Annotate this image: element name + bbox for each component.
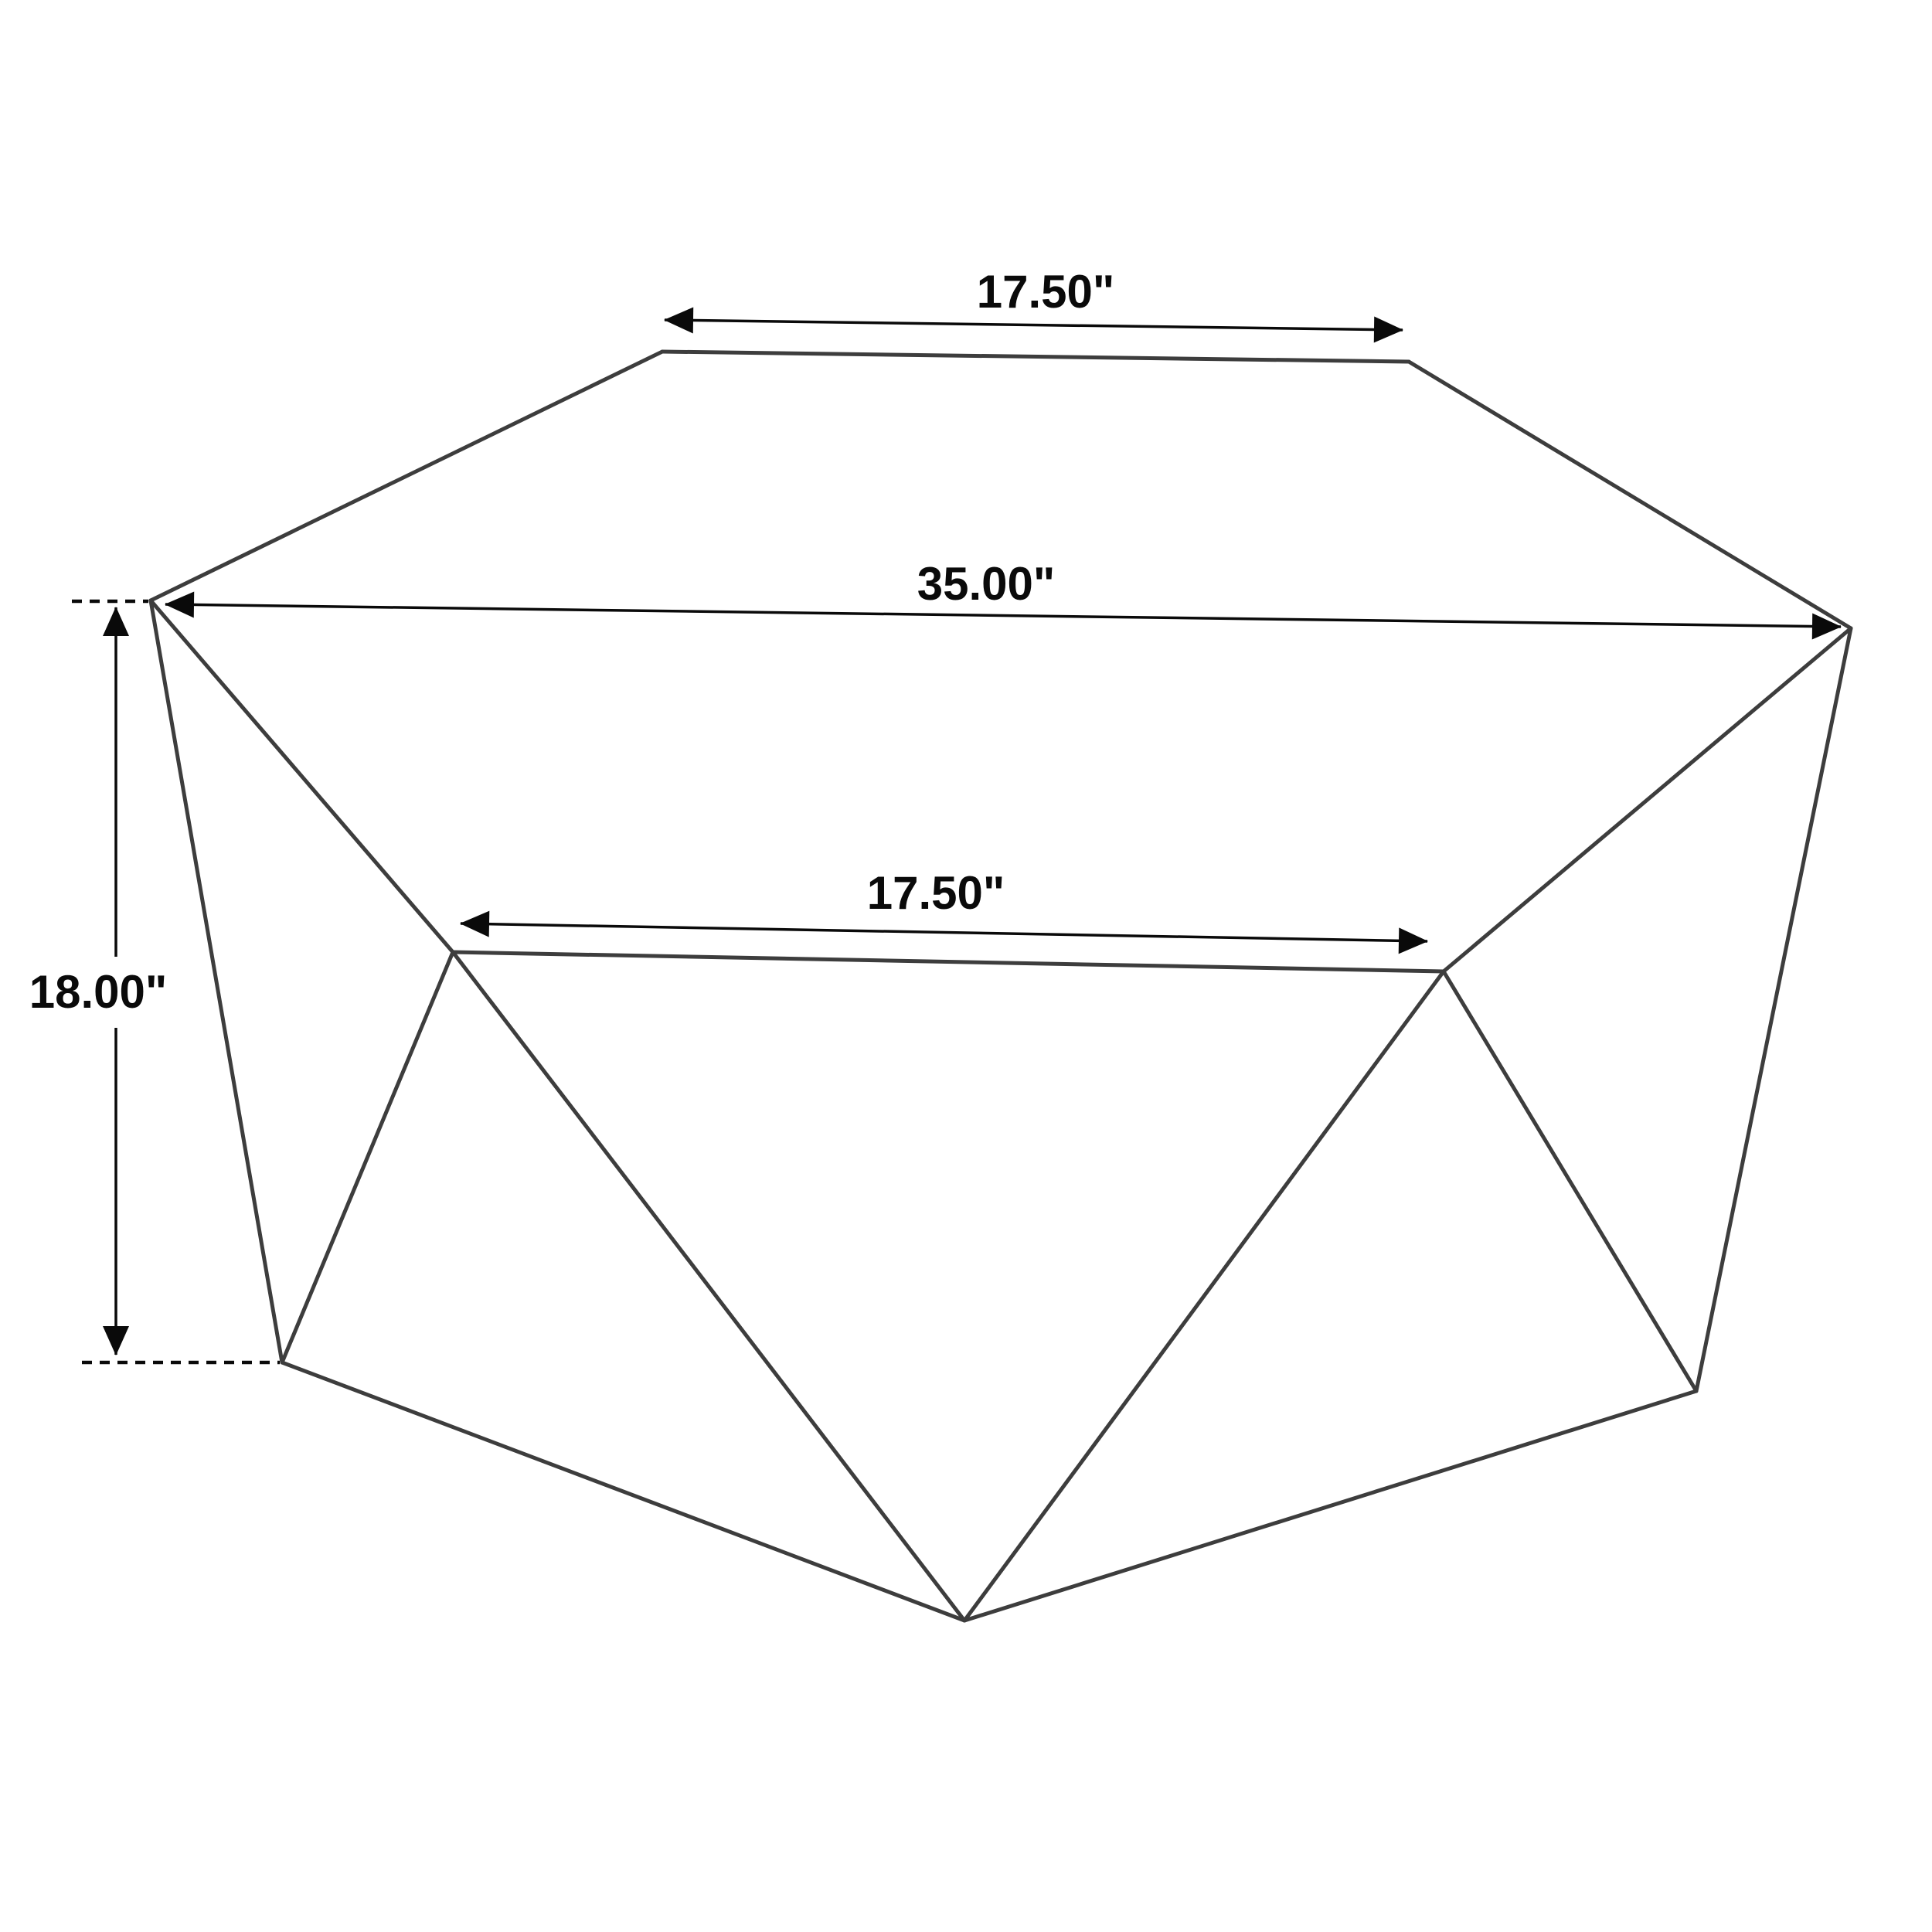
edge-bottom-right [964,1391,1696,1621]
edge-bottom-left [282,1362,964,1621]
dimension-label-top-edge: 17.50" [977,266,1115,318]
dimension-arrow-top-edge [665,320,1403,330]
edge-facet-right [1444,971,1696,1391]
dimension-label-height: 18.00" [29,966,168,1018]
dimension-label-overall-width: 35.00" [917,558,1056,610]
dimension-arrow-front-edge [461,923,1427,941]
edge-top-back-left [151,352,662,600]
edge-facet-front-left [453,952,964,1621]
edge-top-front-right [1444,628,1851,971]
table-wireframe [151,352,1851,1621]
edge-top-front [453,952,1444,971]
edge-top-back-right [1409,362,1851,628]
dimension-height: 18.00" [29,601,280,1362]
dimension-front-edge: 17.50" [461,867,1427,941]
furniture-dimension-diagram: 17.50" 35.00" 17.50" 18.00" [0,0,1932,1932]
edge-side-right [1696,628,1851,1391]
geometric-table-dimension-drawing: 17.50" 35.00" 17.50" 18.00" [0,0,1932,1932]
edge-side-left [151,600,282,1362]
edge-top-back [662,352,1409,362]
dimension-overall-width: 35.00" [165,558,1841,627]
edge-facet-left [282,952,453,1362]
edge-top-front-left [151,600,453,952]
edge-facet-front-right [964,971,1444,1621]
dimension-label-front-edge: 17.50" [867,867,1005,919]
dimension-top-edge: 17.50" [665,266,1403,330]
